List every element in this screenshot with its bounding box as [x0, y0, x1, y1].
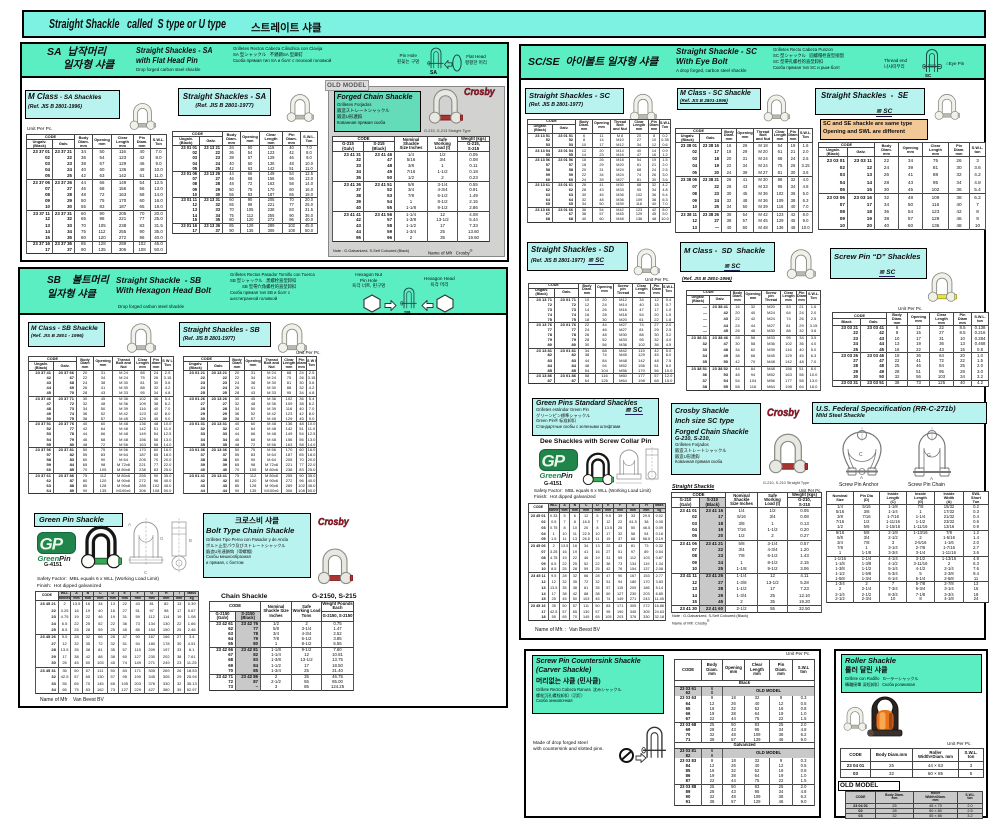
- svg-text:C: C: [859, 452, 863, 458]
- svg-text:G: G: [927, 453, 931, 459]
- svg-text:GP: GP: [40, 535, 64, 554]
- svg-text:A: A: [128, 522, 131, 527]
- svg-text:Pin: Pin: [561, 471, 573, 479]
- svg-text:Green: Green: [38, 554, 60, 562]
- svg-text:GP: GP: [542, 452, 566, 471]
- svg-text:A: A: [930, 476, 933, 481]
- svg-text:Green: Green: [540, 471, 562, 479]
- svg-text:B: B: [189, 538, 192, 543]
- svg-text:A: A: [860, 475, 863, 480]
- svg-text:C: C: [144, 570, 148, 575]
- svg-text:Pin: Pin: [59, 554, 71, 562]
- svg-text:G: G: [160, 536, 164, 541]
